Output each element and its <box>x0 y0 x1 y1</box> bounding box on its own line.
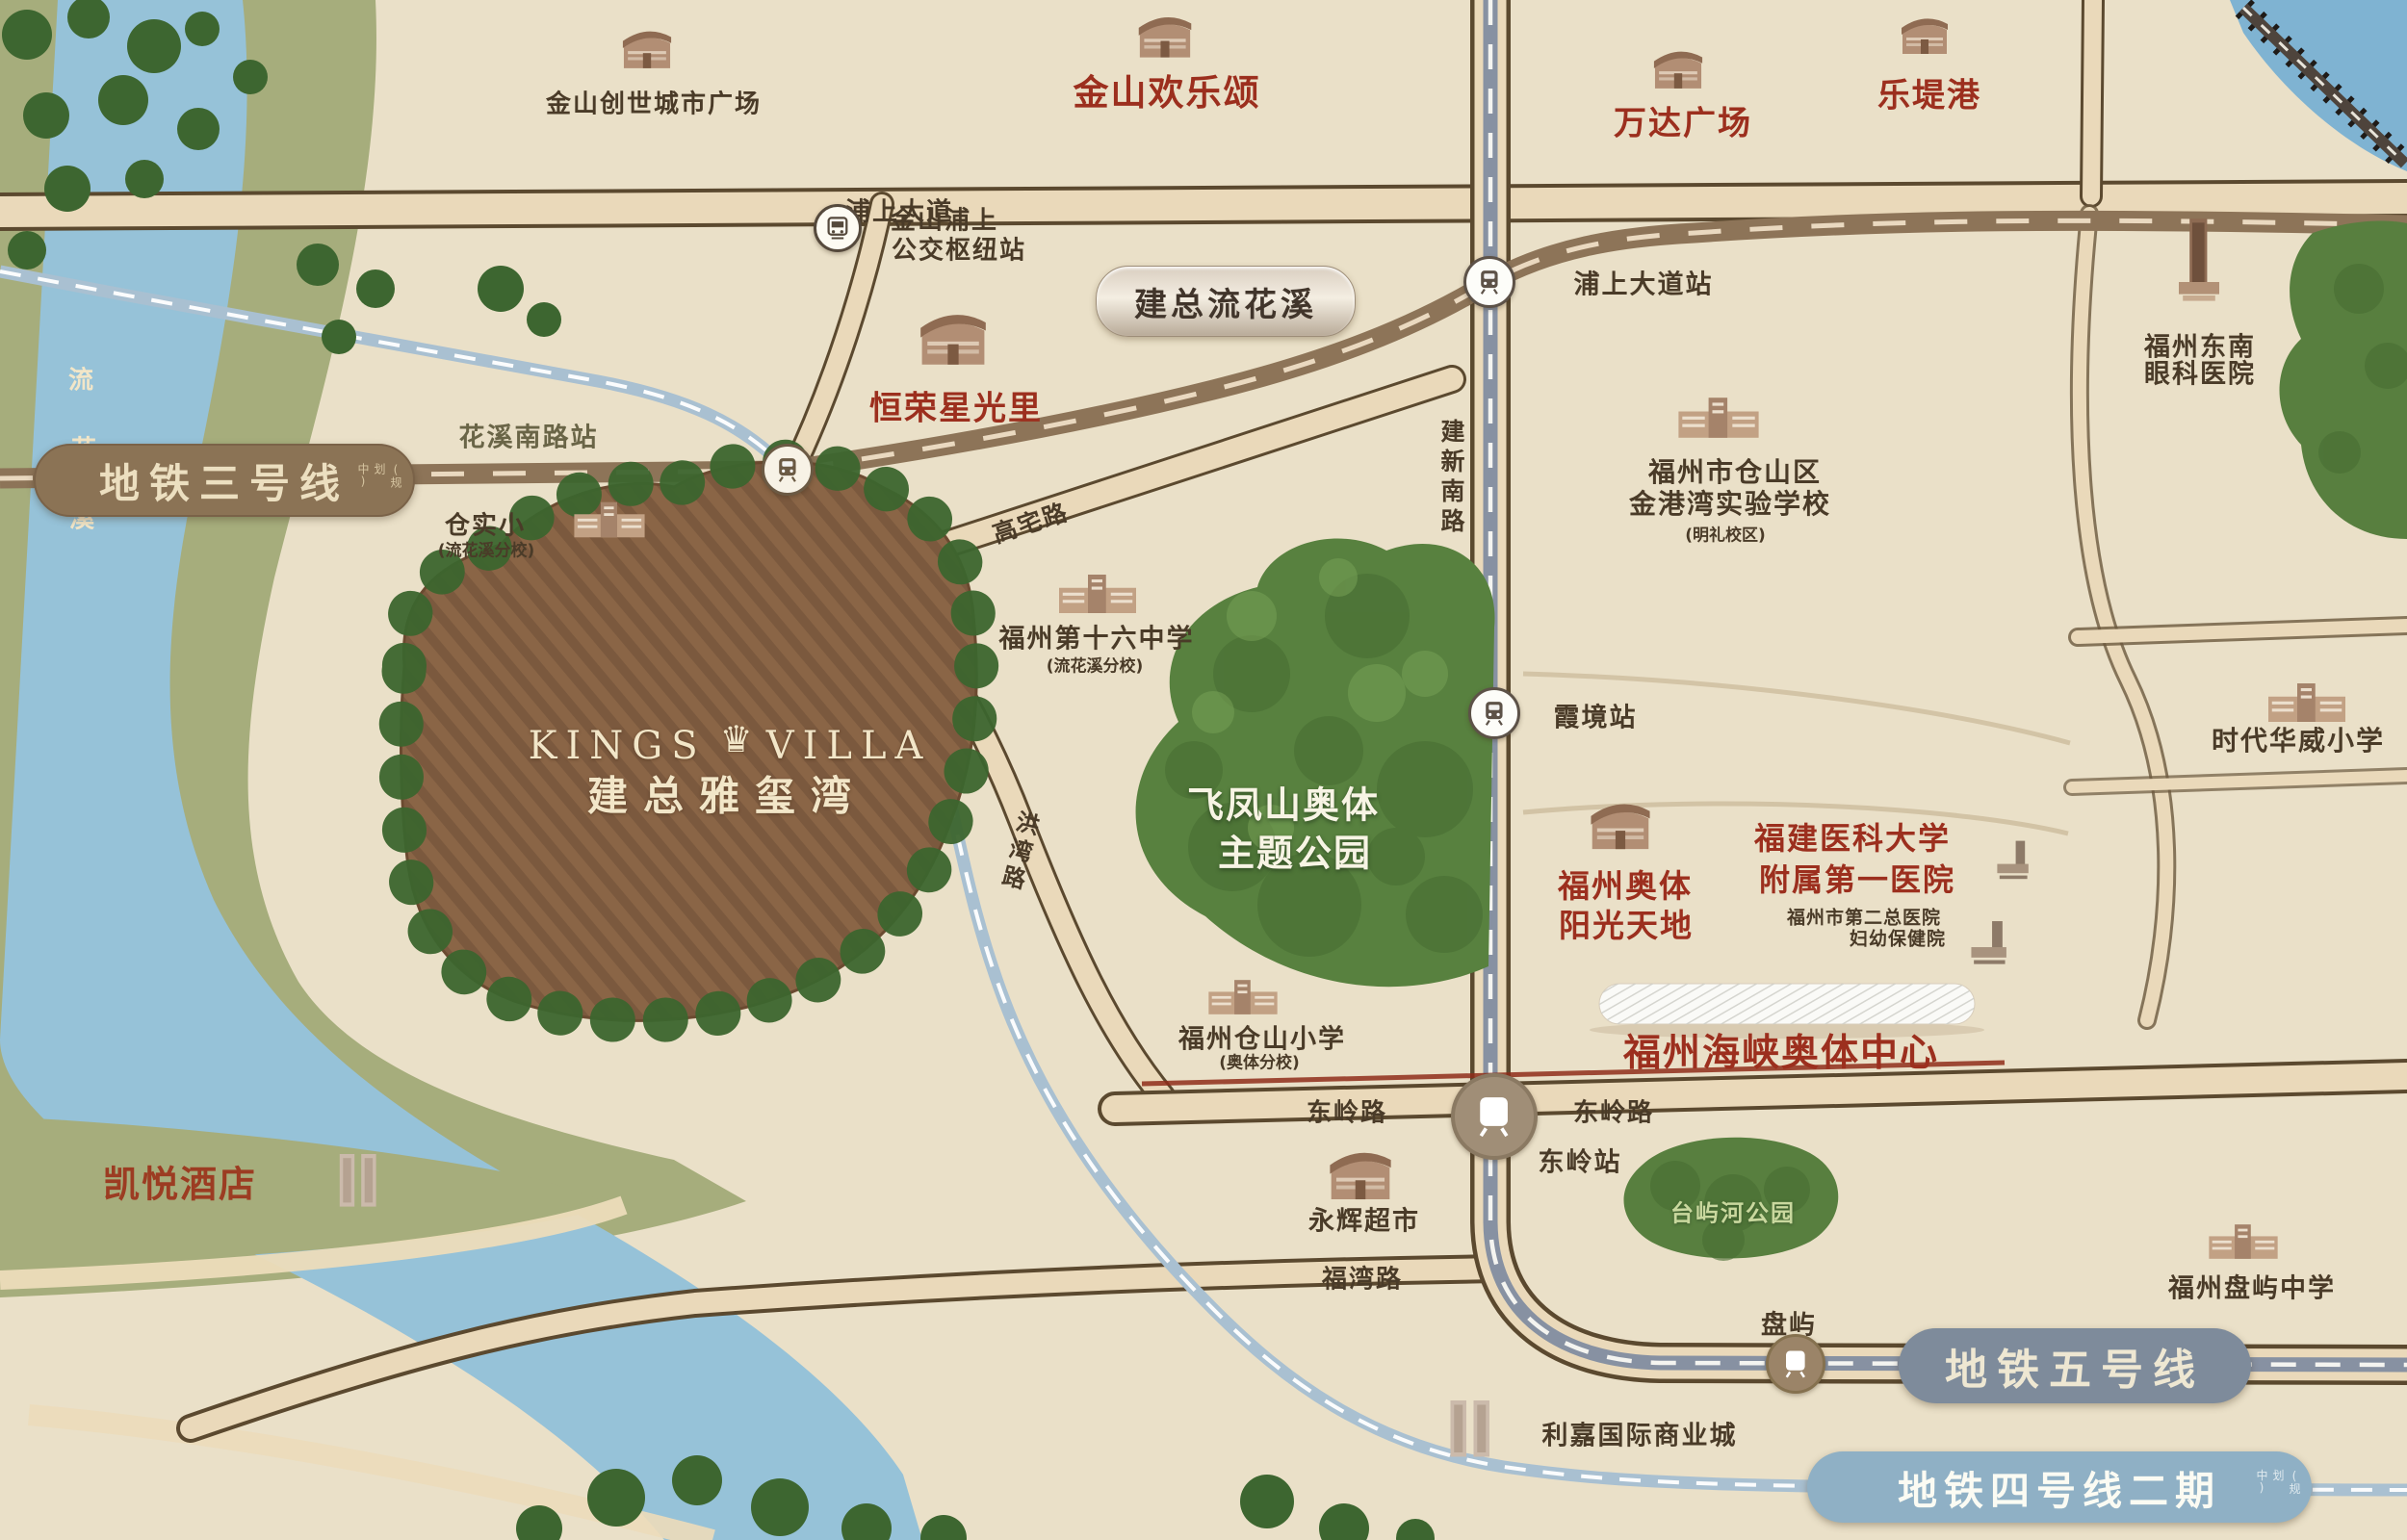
school-icon-cangshan-primary <box>1205 976 1281 1019</box>
metro-line3-label: 地铁三号线 <box>99 451 349 510</box>
road-dongling-west: 东岭路 <box>1307 1093 1387 1129</box>
poi-no16-school-note: (流花溪分校) <box>1047 653 1144 677</box>
road-jianxin-south: 建新南路 <box>1434 419 1468 538</box>
property-name-right: VILLA <box>766 724 932 768</box>
metro-line4-badge: 地铁四号线二期 (规划中) <box>1807 1451 2312 1523</box>
bus-hub-icon <box>814 204 862 252</box>
towers-icon-kaiyue <box>330 1143 384 1219</box>
poi-shidai-school: 时代华威小学 <box>2212 720 2385 758</box>
poi-jingangwan-note: (明礼校区) <box>1685 522 1766 546</box>
station-label-xiajing: 霞境站 <box>1554 697 1638 734</box>
poi-wanda: 万达广场 <box>1614 97 1752 144</box>
station-icon-panyu <box>1766 1334 1825 1394</box>
property-logo: KINGS ♛ VILLA <box>529 724 932 768</box>
poi-dongnan-eye-line2: 眼科医院 <box>2144 353 2256 391</box>
mall-icon-ledigang <box>1895 14 1954 57</box>
poi-hengrong: 恒荣星光里 <box>869 382 1043 429</box>
road-fuwan: 福湾路 <box>1322 1260 1403 1296</box>
metro-line4-label: 地铁四号线二期 <box>1898 1458 2221 1516</box>
hospital-icon-fjmu <box>1989 837 2035 884</box>
metro-line5-label: 地铁五号线 <box>1945 1335 2205 1397</box>
station-label-dongling: 东岭站 <box>1539 1142 1622 1179</box>
jianzong-liuhuaxi-label: 建总流花溪 <box>1134 278 1317 325</box>
station-label-huaxi-south: 花溪南路站 <box>459 417 599 454</box>
metro-line3-note: (规划中) <box>355 463 404 498</box>
crown-icon: ♛ <box>720 718 753 760</box>
map-artwork <box>0 0 2407 1540</box>
poi-jinshan-joy: 金山欢乐颂 <box>1074 64 1261 115</box>
school-icon-panyu <box>2206 1220 2281 1264</box>
poi-jingangwan-line2: 金港湾实验学校 <box>1629 483 1831 522</box>
jianzong-liuhuaxi-plate: 建总流花溪 <box>1096 266 1356 337</box>
hospital-icon-second <box>1962 917 2014 969</box>
school-icon-no16 <box>1055 570 1140 618</box>
school-icon-jingangwan <box>1674 393 1763 443</box>
mall-icon-jinshan-joy <box>1131 13 1199 61</box>
metro-line5-badge: 地铁五号线 <box>1899 1328 2251 1403</box>
station-label-pushang: 浦上大道站 <box>1574 264 1714 301</box>
mall-icon-yonghui <box>1320 1147 1401 1203</box>
poi-cangshan-primary-note: (奥体分校) <box>1219 1049 1300 1073</box>
poi-aoti-center: 福州海峡奥体中心 <box>1623 1023 1939 1077</box>
poi-ledigang: 乐堤港 <box>1877 69 1981 116</box>
park-feifeng-line1: 飞凤山奥体 <box>1187 776 1380 829</box>
poi-fjmu-line1: 福建医科大学 <box>1754 814 1951 859</box>
station-icon-dongling <box>1451 1073 1538 1160</box>
hospital-icon-dongnan-eye <box>2172 205 2226 319</box>
poi-panyu-school: 福州盘屿中学 <box>2168 1268 2336 1305</box>
poi-kaiyue-hotel: 凯悦酒店 <box>103 1155 257 1208</box>
river-char-1: 流 <box>68 361 95 397</box>
poi-lijia: 利嘉国际商业城 <box>1542 1415 1738 1452</box>
mall-icon-jinshan-plaza <box>616 27 678 71</box>
location-map: 地铁三号线 (规划中) 地铁五号线 地铁四号线二期 (规划中) 建总流花溪 KI… <box>0 0 2407 1540</box>
poi-cangshixiao-note: (流花溪分校) <box>438 537 535 561</box>
poi-aoti-sunshine-line2: 阳光天地 <box>1559 900 1694 946</box>
mall-icon-wanda <box>1647 47 1709 91</box>
station-icon-xiajing <box>1468 687 1520 739</box>
poi-fjmu-line2: 附属第一医院 <box>1759 856 1955 900</box>
poi-no16-school: 福州第十六中学 <box>999 618 1195 655</box>
poi-second-hospital-line2: 妇幼保健院 <box>1850 925 1946 951</box>
property-name-left: KINGS <box>529 724 707 768</box>
mall-icon-aoti-sunshine <box>1582 799 1659 853</box>
poi-yonghui: 永辉超市 <box>1308 1200 1420 1238</box>
poi-bus-hub-line2: 公交枢纽站 <box>892 231 1026 267</box>
station-icon-huaxi-south <box>762 444 814 496</box>
station-icon-pushang <box>1463 256 1515 308</box>
metro-line4-note: (规划中) <box>2254 1470 2303 1505</box>
park-feifeng-line2: 主题公园 <box>1218 824 1372 877</box>
metro-line3-badge: 地铁三号线 (规划中) <box>34 444 415 517</box>
park-taiyuhe: 台屿河公园 <box>1670 1194 1796 1228</box>
property-name-zh: 建总雅玺湾 <box>587 764 867 823</box>
road-dongling-east: 东岭路 <box>1573 1093 1654 1129</box>
poi-jinshan-plaza: 金山创世城市广场 <box>546 85 762 120</box>
towers-icon-lijia <box>1440 1387 1498 1472</box>
mall-icon-hengrong <box>911 309 996 369</box>
school-icon-cangshixiao <box>571 498 648 542</box>
